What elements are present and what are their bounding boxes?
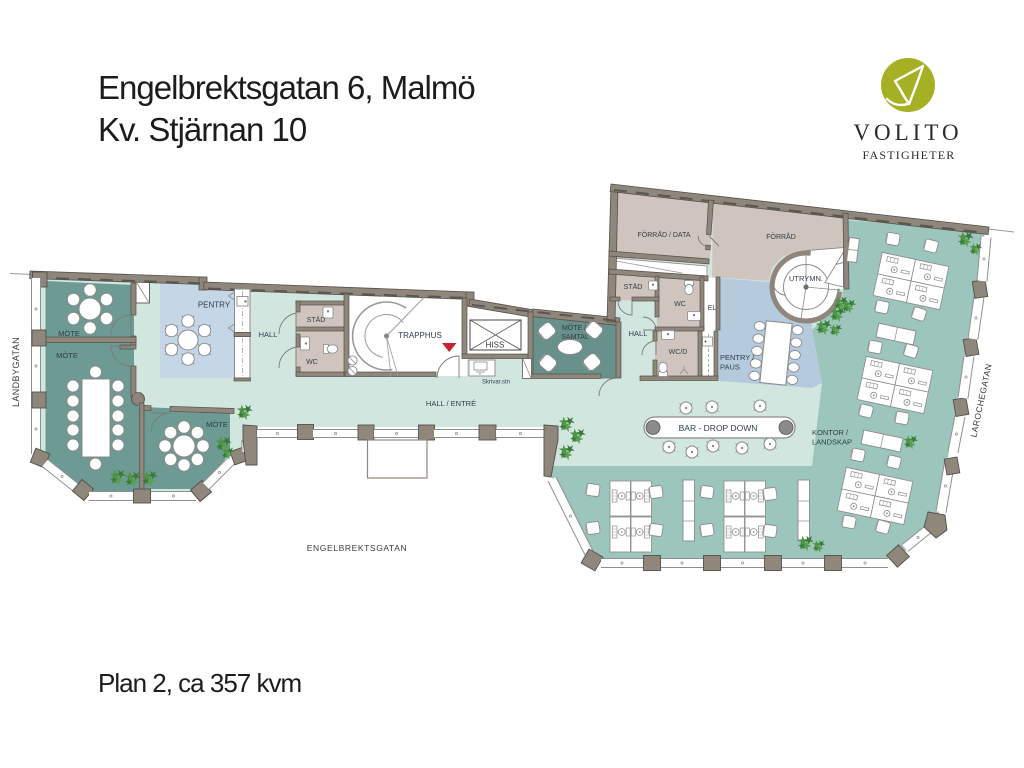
svg-text:HISS: HISS — [486, 341, 505, 350]
svg-text:EL: EL — [708, 305, 717, 312]
svg-text:MÖTE: MÖTE — [56, 351, 78, 360]
svg-text:ENGELBREKTSGATAN: ENGELBREKTSGATAN — [307, 543, 407, 553]
svg-text:SAMTAL: SAMTAL — [561, 334, 589, 341]
svg-text:KONTOR /: KONTOR / — [812, 428, 849, 437]
svg-text:PENTRY /: PENTRY / — [720, 353, 755, 362]
svg-text:WC: WC — [306, 359, 318, 366]
svg-text:STÄD: STÄD — [624, 283, 643, 291]
svg-text:PAUS: PAUS — [720, 363, 740, 372]
svg-text:MÖTE: MÖTE — [58, 329, 80, 338]
svg-text:HALL / ENTRÉ: HALL / ENTRÉ — [426, 399, 476, 408]
svg-text:MÖTE /: MÖTE / — [562, 324, 586, 332]
svg-text:TRAPPHUS: TRAPPHUS — [398, 331, 442, 340]
svg-text:STÄD: STÄD — [307, 316, 326, 324]
svg-text:FÖRRÅD / DATA: FÖRRÅD / DATA — [637, 230, 690, 239]
svg-text:LANDBYGATAN: LANDBYGATAN — [11, 337, 21, 407]
svg-text:HALL: HALL — [629, 329, 648, 338]
svg-text:BAR - DROP DOWN: BAR - DROP DOWN — [679, 423, 758, 433]
svg-text:LANDSKAP: LANDSKAP — [812, 438, 852, 447]
svg-text:FASTIGHETER: FASTIGHETER — [863, 148, 956, 162]
svg-text:WC: WC — [674, 301, 686, 308]
svg-text:Plan 2, ca 357 kvm: Plan 2, ca 357 kvm — [98, 668, 301, 698]
svg-text:PENTRY: PENTRY — [198, 301, 231, 310]
svg-text:UTRYMN.: UTRYMN. — [789, 274, 823, 283]
svg-text:Kv. Stjärnan 10: Kv. Stjärnan 10 — [98, 111, 307, 148]
svg-text:HALL: HALL — [259, 330, 278, 339]
svg-text:FÖRRÅD: FÖRRÅD — [766, 232, 796, 241]
svg-text:Skrivar.stn: Skrivar.stn — [482, 380, 510, 386]
svg-text:WC/D: WC/D — [669, 349, 688, 356]
svg-text:VOLITO: VOLITO — [853, 120, 962, 145]
svg-text:MÖTE: MÖTE — [206, 420, 228, 429]
svg-text:Engelbrektsgatan 6, Malmö: Engelbrektsgatan 6, Malmö — [98, 69, 475, 106]
